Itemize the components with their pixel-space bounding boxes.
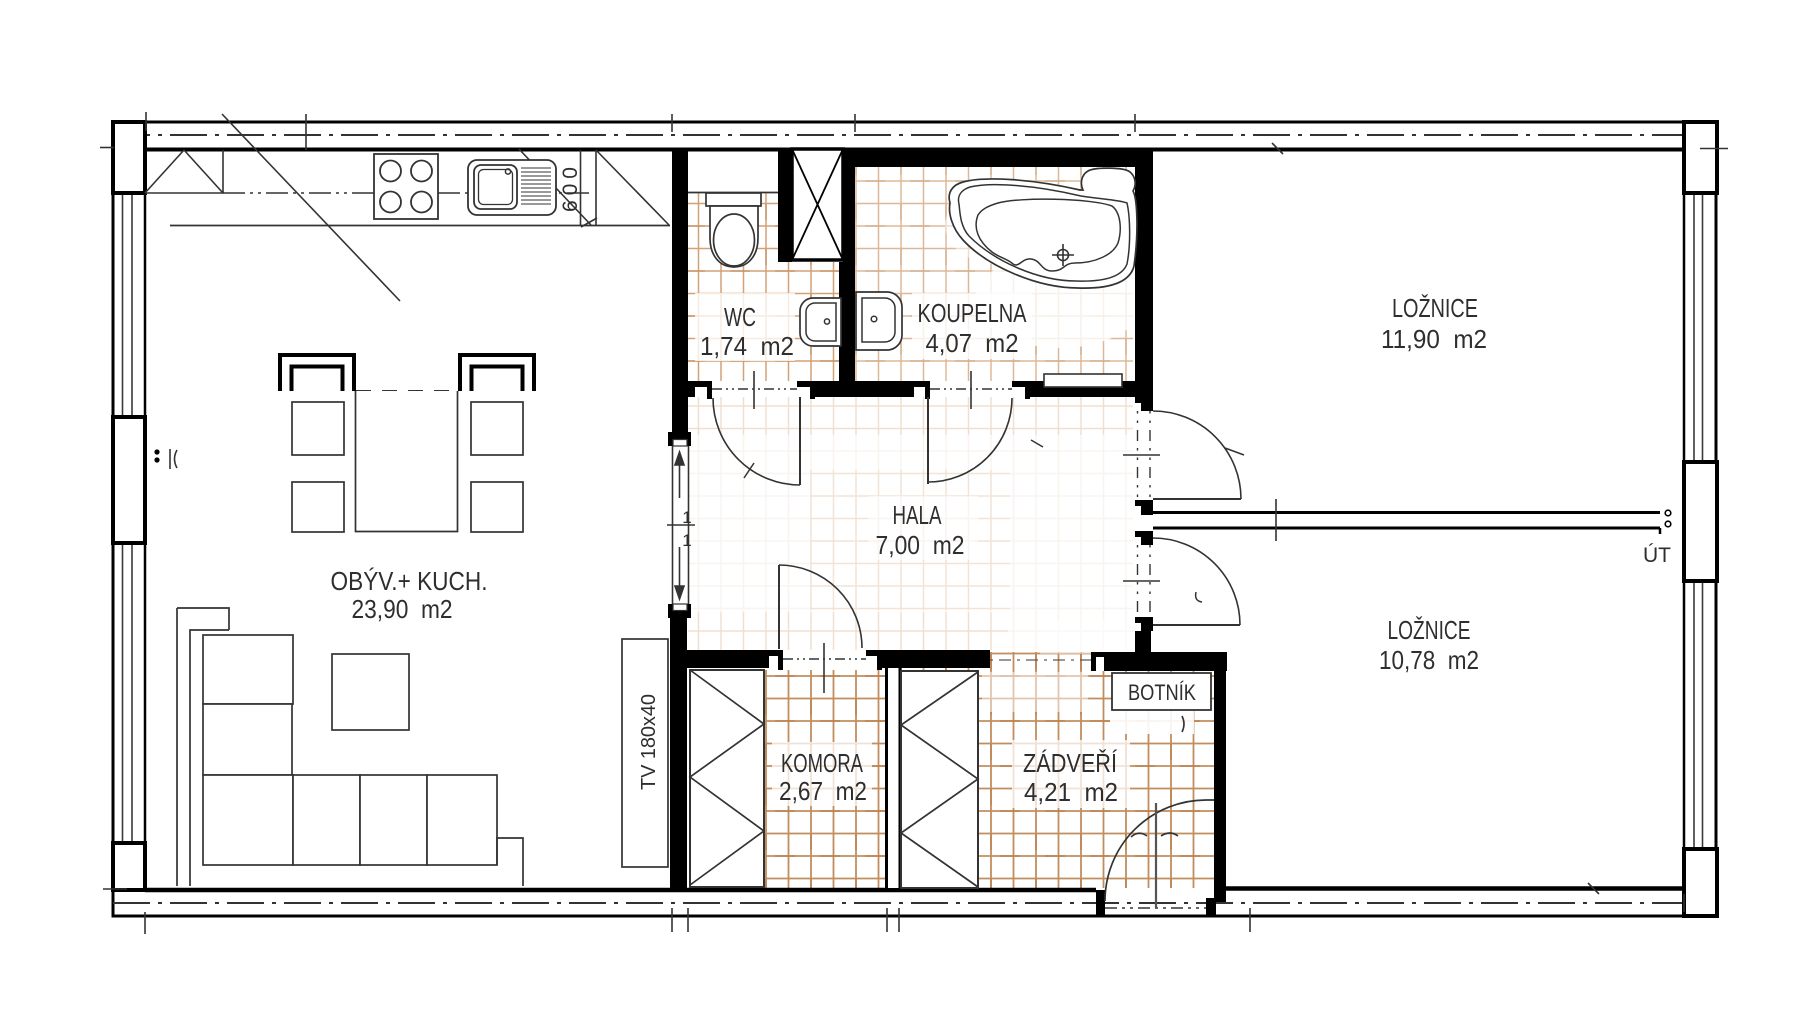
svg-text:OBÝV.+ KUCH.: OBÝV.+ KUCH. (331, 566, 488, 596)
svg-text:11,90 m2: 11,90 m2 (1381, 324, 1487, 354)
svg-text:600: 600 (559, 167, 582, 212)
svg-text:BOTNÍK: BOTNÍK (1128, 680, 1196, 705)
svg-text:KOUPELNA: KOUPELNA (918, 298, 1028, 328)
svg-text:4,21 m2: 4,21 m2 (1024, 777, 1118, 807)
svg-text:LOŽNICE: LOŽNICE (1392, 293, 1478, 323)
svg-text:23,90 m2: 23,90 m2 (352, 594, 453, 624)
svg-text:ÚT: ÚT (1643, 544, 1671, 567)
svg-text:2,67 m2: 2,67 m2 (779, 776, 867, 806)
svg-text:HALA: HALA (893, 500, 942, 530)
svg-text:7,00 m2: 7,00 m2 (876, 530, 965, 560)
svg-text:4,07 m2: 4,07 m2 (926, 328, 1019, 358)
svg-text:TV 180x40: TV 180x40 (638, 694, 660, 790)
svg-text:LOŽNICE: LOŽNICE (1388, 615, 1471, 645)
svg-text:10,78 m2: 10,78 m2 (1379, 645, 1479, 675)
svg-text:ZÁDVEŘÍ: ZÁDVEŘÍ (1023, 748, 1118, 778)
svg-text:KOMORA: KOMORA (781, 748, 863, 778)
svg-text:1: 1 (682, 508, 691, 527)
svg-text:1: 1 (682, 531, 691, 550)
svg-text:WC: WC (724, 302, 756, 332)
svg-text:1,74 m2: 1,74 m2 (700, 331, 794, 361)
